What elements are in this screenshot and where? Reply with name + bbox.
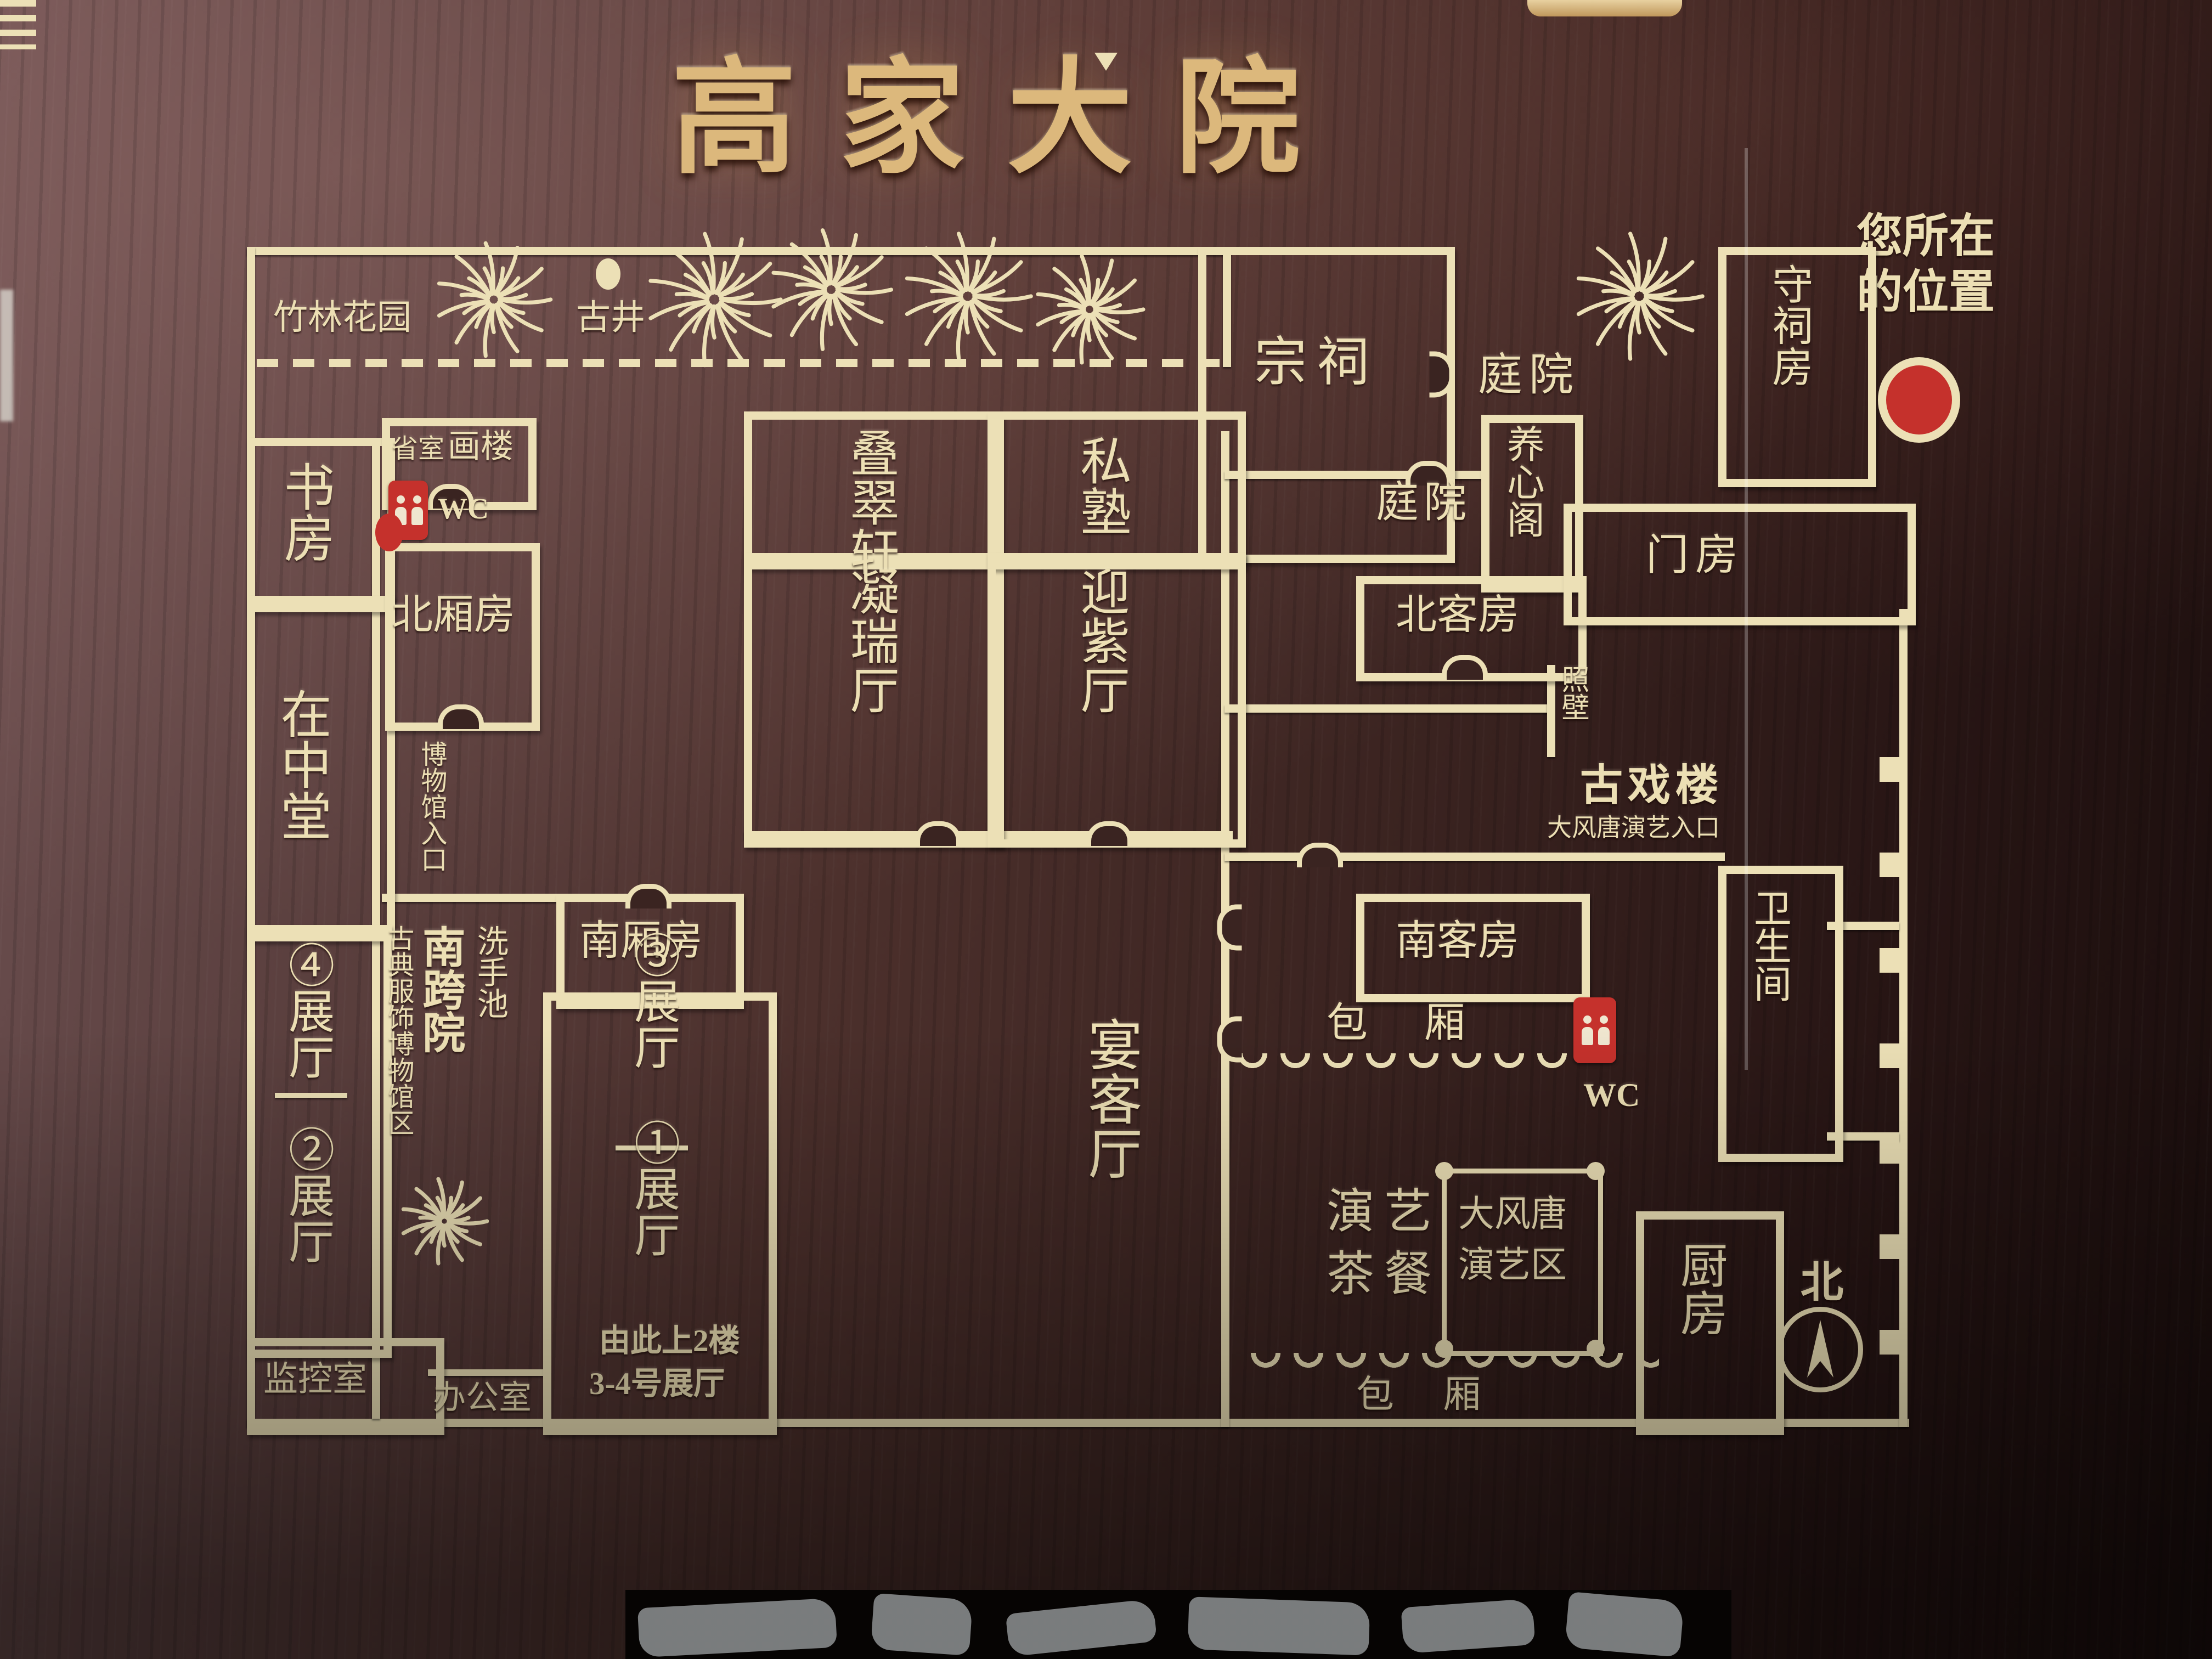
corner-dot (1587, 1162, 1605, 1180)
sticker-blob (1006, 1599, 1158, 1657)
person-icon (411, 506, 422, 524)
tree-icon (1573, 230, 1705, 362)
wall-notch (1880, 1043, 1899, 1068)
wc-right-label: WC (1583, 1080, 1640, 1114)
wall (1899, 609, 1908, 1427)
yanketing-label: 宴客厅 (1080, 1017, 1137, 1180)
zongci-label: 宗祠 (1254, 336, 1379, 391)
door-scallops-icon (1244, 1353, 1659, 1376)
photo-edge (0, 290, 13, 421)
wall-notch (1880, 853, 1899, 877)
sishu-label: 私塾 (1073, 435, 1127, 537)
sticker-blob (637, 1598, 837, 1658)
tingyuan-1-label: 庭院 (1478, 352, 1580, 399)
door-arc-icon (625, 884, 672, 909)
menfang-label: 门房 (1646, 533, 1745, 578)
damaged-sticker (625, 1590, 1731, 1659)
sticker-blob (1187, 1596, 1370, 1655)
wall-notch (1880, 1330, 1899, 1355)
shufang-label: 书房 (276, 461, 330, 563)
signboard: 高家大院 您所在 的位置 竹林花园古井宗祠庭院守祠房书房省室画楼WC北厢房在中堂… (0, 0, 2212, 1659)
wc-left-label: WC (438, 494, 489, 525)
hall-1-label: ①展厅 (629, 1119, 677, 1257)
stairs-down-icon (0, 0, 2212, 71)
guxilou-label: 古戏楼 (1580, 764, 1723, 809)
baoxiang-top-label: 包 厢 (1327, 1004, 1488, 1047)
wall-notch (1880, 1139, 1899, 1164)
floor-plan: 竹林花园古井宗祠庭院守祠房书房省室画楼WC北厢房在中堂博物馆入口叠翠轩凝瑞厅私塾… (0, 0, 2212, 1659)
stair-rungs (0, 0, 36, 49)
zhulin-garden-label: 竹林花园 (273, 300, 411, 336)
ningruiting-label: 凝瑞厅 (843, 566, 895, 714)
hall-2-label: ②展厅 (283, 1126, 331, 1264)
wall (1224, 704, 1554, 713)
nankuayuan-label: 南跨院 (418, 925, 463, 1053)
map-position-dot (375, 513, 403, 551)
door-arc-icon (1297, 843, 1343, 867)
yanyi-chacan-label-2: 茶餐 (1327, 1251, 1442, 1301)
person-icon (1581, 1026, 1593, 1045)
tree-icon (400, 1177, 489, 1266)
bowuguan-rukou-label: 博物馆入口 (415, 741, 442, 872)
tree-icon (902, 230, 1034, 362)
diecuixuan-label: 叠翠轩 (843, 428, 895, 576)
weishengjian-label: 卫生间 (1748, 889, 1787, 1002)
xishouchi-label: 洗手池 (472, 925, 505, 1019)
hualou-label: 画楼 (448, 431, 513, 466)
wall-notch (1880, 757, 1899, 782)
person-icon (1598, 1026, 1609, 1045)
beixiangfang-label: 北厢房 (392, 596, 515, 639)
wall (382, 894, 563, 902)
sticker-blob (1565, 1592, 1684, 1657)
chufang-label: 厨房 (1674, 1241, 1724, 1336)
tree-icon (435, 240, 553, 359)
sticker-blob (871, 1593, 973, 1656)
wall-notch (1880, 948, 1899, 973)
well-dot-icon (596, 258, 620, 290)
gudianfushi-label: 古典服饰博物馆区 (382, 925, 409, 1136)
north-compass-icon (1778, 1307, 1863, 1392)
down-arrow-icon (1094, 53, 1118, 71)
zaizhongtang-label: 在中堂 (273, 688, 327, 841)
tingyuan-2-label: 庭院 (1376, 481, 1471, 526)
you-are-here-dot (1886, 365, 1952, 435)
hall-4-label: ④展厅 (283, 941, 331, 1080)
nankefang-label: 南客房 (1396, 922, 1519, 965)
north-label: 北 (1801, 1261, 1843, 1306)
beikefang-label: 北客房 (1396, 596, 1519, 639)
zhaobi-label: 照壁 (1557, 665, 1587, 721)
wall-notch (1880, 1234, 1899, 1259)
hall-3-label: ③展厅 (629, 932, 677, 1070)
shengshi-label: 省室 (392, 438, 444, 465)
wood-crack (1745, 148, 1748, 1070)
stairs-note-line1: 由此上2楼 (599, 1327, 740, 1359)
shoucifang-label: 守祠房 (1766, 263, 1809, 387)
wc-right-badge (1573, 997, 1616, 1063)
sticker-blob (1401, 1599, 1535, 1654)
tree-icon (769, 227, 894, 352)
tree-icon (645, 230, 783, 369)
yangxinge-label: 养心阁 (1501, 425, 1541, 538)
tree-icon (1034, 253, 1145, 365)
yanyi-chacan-label-1: 演艺 (1327, 1188, 1442, 1238)
gujing-label: 古井 (576, 300, 645, 336)
yingziting-label: 迎紫厅 (1073, 566, 1125, 714)
dafengtang-area-label-1: 大风唐 (1458, 1195, 1567, 1233)
corner-dot (1435, 1162, 1453, 1180)
baoxiang-bottom-label: 包 厢 (1356, 1376, 1500, 1415)
dafengtang-area-label-2: 演艺区 (1458, 1246, 1567, 1284)
jiankongshi-label: 监控室 (263, 1361, 367, 1397)
stairs-note-line2: 3-4号展厅 (589, 1369, 725, 1402)
dafengtang-entrance-label: 大风唐演艺入口 (1547, 818, 1720, 844)
door-scallops-icon (1231, 1053, 1580, 1076)
wall (428, 1369, 543, 1376)
bangongshi-label: 办公室 (433, 1383, 532, 1417)
